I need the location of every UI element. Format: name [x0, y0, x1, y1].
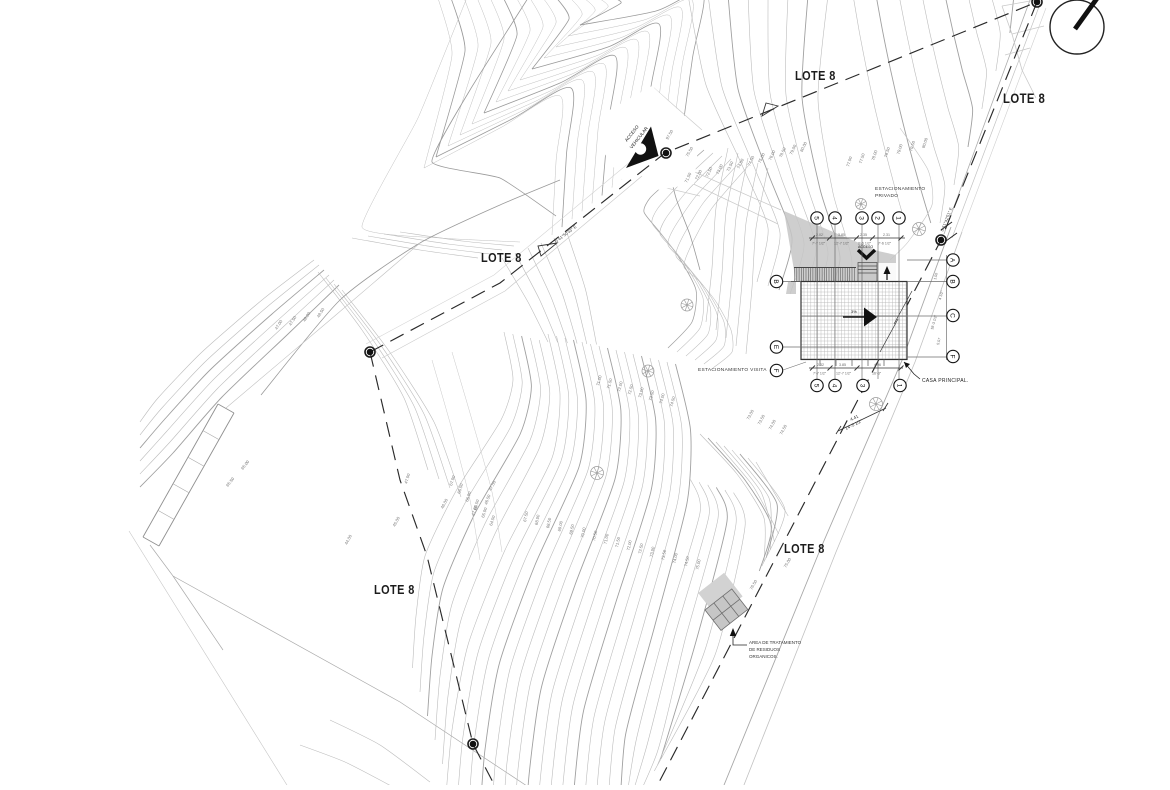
svg-text:LOTE 8: LOTE 8 [374, 582, 415, 597]
svg-text:B: B [949, 279, 956, 283]
svg-text:PRIVADO: PRIVADO [875, 193, 898, 199]
svg-text:LOTE 8: LOTE 8 [1003, 91, 1045, 106]
svg-text:A: A [949, 258, 956, 263]
svg-text:F: F [772, 369, 779, 373]
svg-text:CASA PRINCIPAL.: CASA PRINCIPAL. [922, 378, 969, 384]
svg-text:3%: 3% [851, 309, 857, 314]
svg-text:7'-7 1/2": 7'-7 1/2" [812, 242, 826, 246]
svg-text:2'-6 1/2": 2'-6 1/2" [858, 242, 872, 246]
svg-text:C: C [949, 313, 956, 318]
svg-text:2: 2 [874, 216, 881, 220]
svg-text:1: 1 [896, 384, 903, 388]
svg-text:3.85: 3.85 [839, 363, 846, 367]
svg-text:LOTE 8: LOTE 8 [784, 541, 825, 556]
svg-text:ESTACIONAMIENTO: ESTACIONAMIENTO [875, 186, 925, 192]
svg-text:2.35: 2.35 [860, 233, 867, 237]
svg-text:ORGANICOS.: ORGANICOS. [749, 654, 778, 659]
svg-text:ACCESO: ACCESO [858, 245, 873, 249]
svg-text:5: 5 [813, 216, 820, 220]
svg-text:12'-7 1/2": 12'-7 1/2" [836, 372, 852, 376]
svg-text:LOTE 8: LOTE 8 [481, 250, 522, 265]
svg-text:3: 3 [859, 384, 866, 388]
svg-text:4: 4 [831, 384, 838, 388]
svg-text:12'-7 1/2": 12'-7 1/2" [834, 242, 850, 246]
svg-text:F: F [949, 355, 956, 359]
svg-text:B: B [772, 279, 779, 283]
svg-text:LOTE 8: LOTE 8 [795, 68, 836, 83]
svg-text:4: 4 [831, 216, 838, 220]
svg-text:2.02: 2.02 [816, 233, 823, 237]
svg-text:4.96: 4.96 [874, 363, 881, 367]
svg-text:AREA DE TRATAMIENTO: AREA DE TRATAMIENTO [749, 640, 802, 645]
svg-text:E: E [772, 345, 779, 350]
svg-text:2.32: 2.32 [817, 363, 824, 367]
svg-text:16'-3": 16'-3" [872, 372, 882, 376]
svg-text:3.85: 3.85 [838, 233, 845, 237]
svg-text:2.31: 2.31 [883, 233, 890, 237]
svg-text:1: 1 [895, 216, 902, 220]
svg-text:3: 3 [858, 216, 865, 220]
svg-text:DE RESIDUOS: DE RESIDUOS [749, 647, 780, 652]
svg-text:ESTACIONAMIENTO VISITA: ESTACIONAMIENTO VISITA [698, 367, 767, 373]
svg-text:7'-7 1/2": 7'-7 1/2" [813, 372, 827, 376]
svg-text:7'-6 1/2": 7'-6 1/2" [878, 242, 892, 246]
svg-text:5: 5 [813, 384, 820, 388]
